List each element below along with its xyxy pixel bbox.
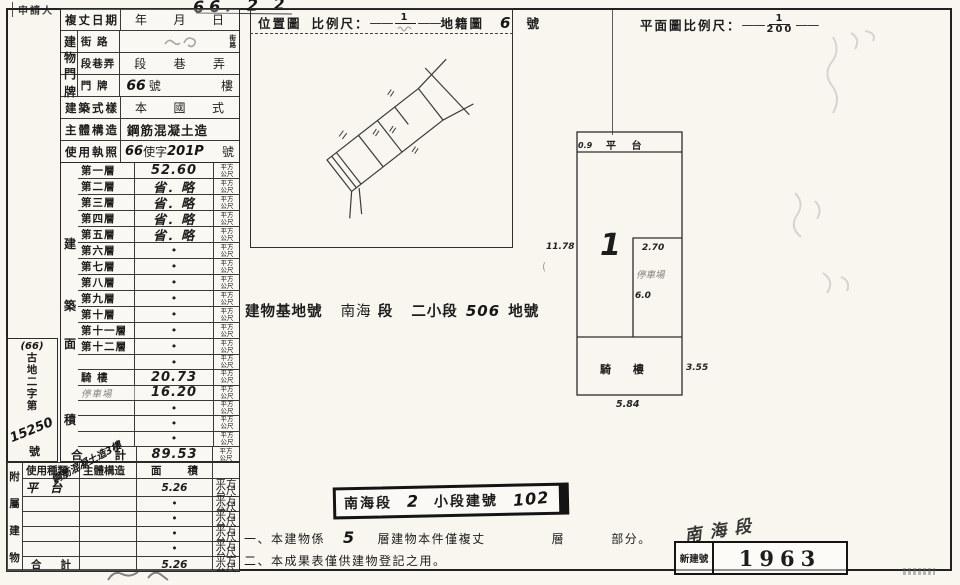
grand-total-unit: 平方 公尺 <box>213 447 239 462</box>
annex-platform-area: 5.26 <box>137 479 213 496</box>
floor-row-unit: 平方公尺 <box>214 370 240 384</box>
map-road-line <box>415 59 450 88</box>
addr-group-char-4: 牌 <box>64 83 77 100</box>
plate-value: 66 號 樓 <box>120 75 239 96</box>
doc-number-chars: 古 地 二 字 第 <box>7 352 57 412</box>
annex-header-area: 面 積 <box>137 463 213 478</box>
lane-value: 段 巷 弄 <box>120 53 239 74</box>
floor-row: 第十二層•平方公尺 <box>78 339 240 355</box>
floor-row-value: • <box>135 432 214 446</box>
floor-plan-drawing: 0.9 平 台 11.78 1 2.70 停車場 6.0 騎 樓 3.55 5.… <box>538 110 723 420</box>
style-label: 建築式樣 <box>61 97 121 118</box>
site-section-stamp: 南海 <box>341 304 372 320</box>
doc-number-handwritten: 15250 <box>8 415 56 446</box>
street-value: 街 路 <box>120 31 239 52</box>
floor-row-unit: 平方公尺 <box>214 243 240 258</box>
scanned-survey-form: 申請人 66. 2 2 複丈日期 年 月 日 街 路 街 路 <box>0 0 960 585</box>
note-1-prefix: 一、本建物係 <box>244 530 325 547</box>
license-year-handwritten: 66 <box>125 144 143 159</box>
floor-row-label: 第一層 <box>78 163 135 178</box>
annex-total-label: 合 計 <box>23 557 80 572</box>
bldg-box-subsection-handwritten: 2 <box>407 492 420 511</box>
floor-row-value: • <box>135 323 214 338</box>
floor-row-value: • <box>135 291 214 306</box>
floor-row-label: 第四層 <box>78 211 135 226</box>
floor-row-value: • <box>135 355 214 369</box>
floor-row-unit: 平方公尺 <box>214 323 240 338</box>
bldg-box-section: 南海段 <box>344 495 392 512</box>
site-lot-handwritten: 506 <box>466 302 500 320</box>
plan-dim-left: 11.78 <box>546 242 574 252</box>
structure-value: 鋼筋混凝土造 <box>121 119 238 140</box>
plan-scale-label: 平面圖比例尺： <box>640 15 742 34</box>
street-label: 街 路 <box>78 31 121 52</box>
addr-group-char-1: 建 <box>64 33 77 50</box>
day-label: 日 <box>212 11 224 28</box>
floor-row-value: 52.60 <box>135 163 214 178</box>
style-v1: 本 <box>135 99 147 116</box>
floor-row-unit: 平方公尺 <box>214 275 240 290</box>
grand-total-value: 89.53 <box>137 447 213 462</box>
floor-row-value: 20.73 <box>135 370 214 384</box>
scan-smudges <box>775 25 890 315</box>
site-subsection: 二小段 <box>411 304 458 320</box>
floor-row-label: 騎 樓 <box>78 370 135 384</box>
plan-platform-label: 平 台 <box>606 139 647 152</box>
new-building-number-box: 新建號 1963 <box>674 541 848 575</box>
note-1-floors-handwritten: 5 <box>343 528 356 547</box>
floor-row-label: 停車場 <box>78 386 135 400</box>
lane-label: 段巷弄 <box>78 53 120 74</box>
site-lot-line: 建物基地號 南海 段 二小段 506 地號 <box>245 300 539 321</box>
floor-row: 第七層•平方公尺 <box>78 259 240 275</box>
map-parcel-band <box>327 89 443 192</box>
bldg-box-label: 小段建號 <box>434 493 498 510</box>
page-mark: (2) <box>220 503 234 514</box>
floor-row-unit: 平方公尺 <box>214 163 240 178</box>
plan-stray-mark: ( <box>542 260 546 273</box>
cadastre-suffix: 號 <box>526 13 541 32</box>
floor-row: 第八層•平方公尺 <box>78 275 240 291</box>
floor-row-label: 第三層 <box>78 195 135 210</box>
doc-number-year: (66) <box>7 341 57 352</box>
note-2: 二、本成果表僅供建物登記之用。 <box>244 552 652 569</box>
annex-blank-row: • 平方公尺 <box>23 527 239 542</box>
floor-row-value: • <box>135 416 214 430</box>
floor-row-value: 省．略 <box>135 227 214 242</box>
annex-vertical-label: 附 屬 建 物 <box>7 463 23 571</box>
doc-number-suffix: 號 <box>29 443 40 459</box>
map-road-line <box>425 64 469 118</box>
annex-blank-row: • 平方公尺 <box>23 497 239 512</box>
floor-row-unit: 平方公尺 <box>214 291 240 306</box>
dash-decoration: —— <box>742 17 765 32</box>
license-number-handwritten: 201P <box>167 144 204 159</box>
note-1-suffix: 部分。 <box>611 530 652 547</box>
addr-group-char-2: 物 <box>64 49 77 66</box>
floor-row-unit: 平方公尺 <box>214 259 240 274</box>
floor-row-value: • <box>135 243 214 258</box>
floor-row-unit: 平方公尺 <box>214 432 240 446</box>
floor-row: 第六層•平方公尺 <box>78 243 240 259</box>
annex-platform-type: 平 台 <box>23 479 80 496</box>
license-value: 66 使字 201P 號 <box>121 141 238 162</box>
floor-row-label: 第十一層 <box>78 323 135 338</box>
floor-row-label: 第十層 <box>78 307 135 322</box>
floor-row-value: 省．略 <box>135 195 214 210</box>
row-street: 街 路 街 路 <box>61 31 239 53</box>
floor-row-unit: 平方公尺 <box>214 416 240 430</box>
floor-row-label: 第六層 <box>78 243 135 258</box>
street-handwriting-smudge <box>162 35 214 49</box>
floor-row: 騎 樓20.73平方公尺 <box>78 370 240 385</box>
floor-row-label: 第九層 <box>78 291 135 306</box>
plan-inner-label: 停車場 <box>636 269 666 281</box>
floor-row-unit: 平方公尺 <box>214 179 240 194</box>
floor-row: 第五層省．略平方公尺 <box>78 227 240 243</box>
lane-seg: 段 <box>134 55 146 72</box>
floor-row-unit: 平方公尺 <box>214 195 240 210</box>
floor-row: •平方公尺 <box>78 401 240 416</box>
plan-dim-inner-height: 6.0 <box>635 291 651 301</box>
note-1-floor-word: 層 <box>552 530 566 547</box>
site-label: 建物基地號 <box>245 304 323 320</box>
style-v2: 國 <box>173 99 185 116</box>
floor-row-label: 第十二層 <box>78 339 135 354</box>
row-structure: 主體構造 鋼筋混凝土造 <box>61 119 239 141</box>
measurement-table: 複丈日期 年 月 日 街 路 街 路 段巷弄 <box>60 8 240 462</box>
plan-dim-platform-width: 0.9 <box>578 141 593 150</box>
license-suffix: 號 <box>222 143 234 160</box>
annex-building-table: 附 屬 建 物 使用種類 主體構造 面 積 平 台 5.26 平方 <box>6 462 240 572</box>
structure-label: 主體構造 <box>61 119 121 140</box>
plan-outline <box>577 132 682 395</box>
bldg-box-number-handwritten: 102 <box>512 488 550 510</box>
row-survey-date: 複丈日期 年 月 日 <box>61 9 239 31</box>
license-word: 使字 <box>143 143 167 160</box>
floor-row: 第九層•平方公尺 <box>78 291 240 307</box>
floor-row-value: • <box>135 307 214 322</box>
annex-blank-row: • 平方公尺 <box>23 512 239 527</box>
floor-row-unit: 平方公尺 <box>214 211 240 226</box>
floor-row-value: • <box>135 401 214 415</box>
month-label: 月 <box>173 11 185 28</box>
plate-floor-suffix: 樓 <box>221 77 233 94</box>
floor-row-label: 第八層 <box>78 275 135 290</box>
corner-print-mark <box>903 568 935 575</box>
license-label: 使用執照 <box>61 141 121 162</box>
note-1-mid: 層建物本件僅複丈 <box>378 530 486 547</box>
row-lane: 段巷弄 段 巷 弄 <box>61 53 239 75</box>
lane-alley: 巷 <box>174 55 186 72</box>
floor-row: 第十層•平方公尺 <box>78 307 240 323</box>
floor-row-value: • <box>135 275 214 290</box>
style-value: 本 國 式 <box>121 97 238 118</box>
floor-row-label <box>78 355 135 369</box>
plate-number-handwritten: 66 <box>126 78 145 94</box>
floor-row-label: 第五層 <box>78 227 135 242</box>
area-group-char-3: 面 <box>64 335 77 352</box>
document-number-box: (66) 古 地 二 字 第 15250 號 <box>6 338 58 462</box>
plan-dim-arcade: 3.55 <box>686 363 708 373</box>
bottom-edge-scribble <box>100 566 210 584</box>
lane-sub: 弄 <box>213 55 225 72</box>
new-building-number-label: 新建號 <box>676 543 714 573</box>
floor-row: •平方公尺 <box>78 355 240 370</box>
year-label: 年 <box>135 11 147 28</box>
row-license: 使用執照 66 使字 201P 號 <box>61 141 239 163</box>
floor-row-unit: 平方公尺 <box>214 386 240 400</box>
annex-platform-structure <box>80 479 137 496</box>
area-group-char-4: 積 <box>64 411 77 428</box>
floor-row-unit: 平方公尺 <box>214 355 240 369</box>
plan-dim-inner-width: 2.70 <box>642 243 664 253</box>
floor-row-value: 省．略 <box>135 211 214 226</box>
plate-no-suffix: 號 <box>149 77 161 94</box>
area-group-char-1: 建 <box>64 235 77 252</box>
floor-rows: 第一層52.60平方公尺第二層省．略平方公尺第三層省．略平方公尺第四層省．略平方… <box>78 163 240 447</box>
floor-row: 停車場16.20平方公尺 <box>78 386 240 401</box>
site-lot-suffix: 地號 <box>508 304 539 320</box>
building-number-box: 南海段 2 小段建號 102 <box>333 483 570 520</box>
plate-label: 門 牌 <box>78 75 121 96</box>
area-group-char-2: 築 <box>64 297 77 314</box>
annex-blank-row: • 平方公尺 <box>23 542 239 557</box>
row-plate: 門 牌 66 號 樓 <box>61 75 239 97</box>
survey-date-label: 複丈日期 <box>61 9 121 30</box>
row-style: 建築式樣 本 國 式 <box>61 97 239 119</box>
site-section-suffix: 段 <box>378 304 394 320</box>
floor-row-label: 第七層 <box>78 259 135 274</box>
applicant-label: 申請人 <box>12 2 54 17</box>
floor-row-value: • <box>135 259 214 274</box>
location-map-drawing <box>252 28 511 242</box>
survey-date-value: 年 月 日 <box>121 9 238 30</box>
style-v3: 式 <box>212 99 224 116</box>
new-building-number-value: 1963 <box>714 543 846 573</box>
floor-row-label <box>78 401 135 415</box>
plan-arcade-label: 騎 樓 <box>600 362 653 376</box>
floor-row: 第十一層•平方公尺 <box>78 323 240 339</box>
annex-header-unit <box>213 463 239 478</box>
floor-row-value: 16.20 <box>135 386 214 400</box>
plan-dim-bottom: 5.84 <box>616 399 640 410</box>
floor-row: •平方公尺 <box>78 416 240 431</box>
addr-group-char-3: 門 <box>64 65 77 82</box>
floor-row-value: 省．略 <box>135 179 214 194</box>
plan-unit-number: 1 <box>600 228 621 263</box>
floor-row-unit: 平方公尺 <box>214 307 240 322</box>
floor-row-label: 第二層 <box>78 179 135 194</box>
floor-row-label <box>78 416 135 430</box>
note-1: 一、本建物係 5 層建物本件僅複丈 層 部分。 <box>244 528 652 547</box>
street-road-stack: 街 路 <box>230 35 237 49</box>
footer-notes: 一、本建物係 5 層建物本件僅複丈 層 部分。 二、本成果表僅供建物登記之用。 <box>244 528 652 569</box>
floor-row-unit: 平方公尺 <box>214 227 240 242</box>
floor-row-unit: 平方公尺 <box>214 339 240 354</box>
floor-row-unit: 平方公尺 <box>214 401 240 415</box>
floor-row-value: • <box>135 339 214 354</box>
